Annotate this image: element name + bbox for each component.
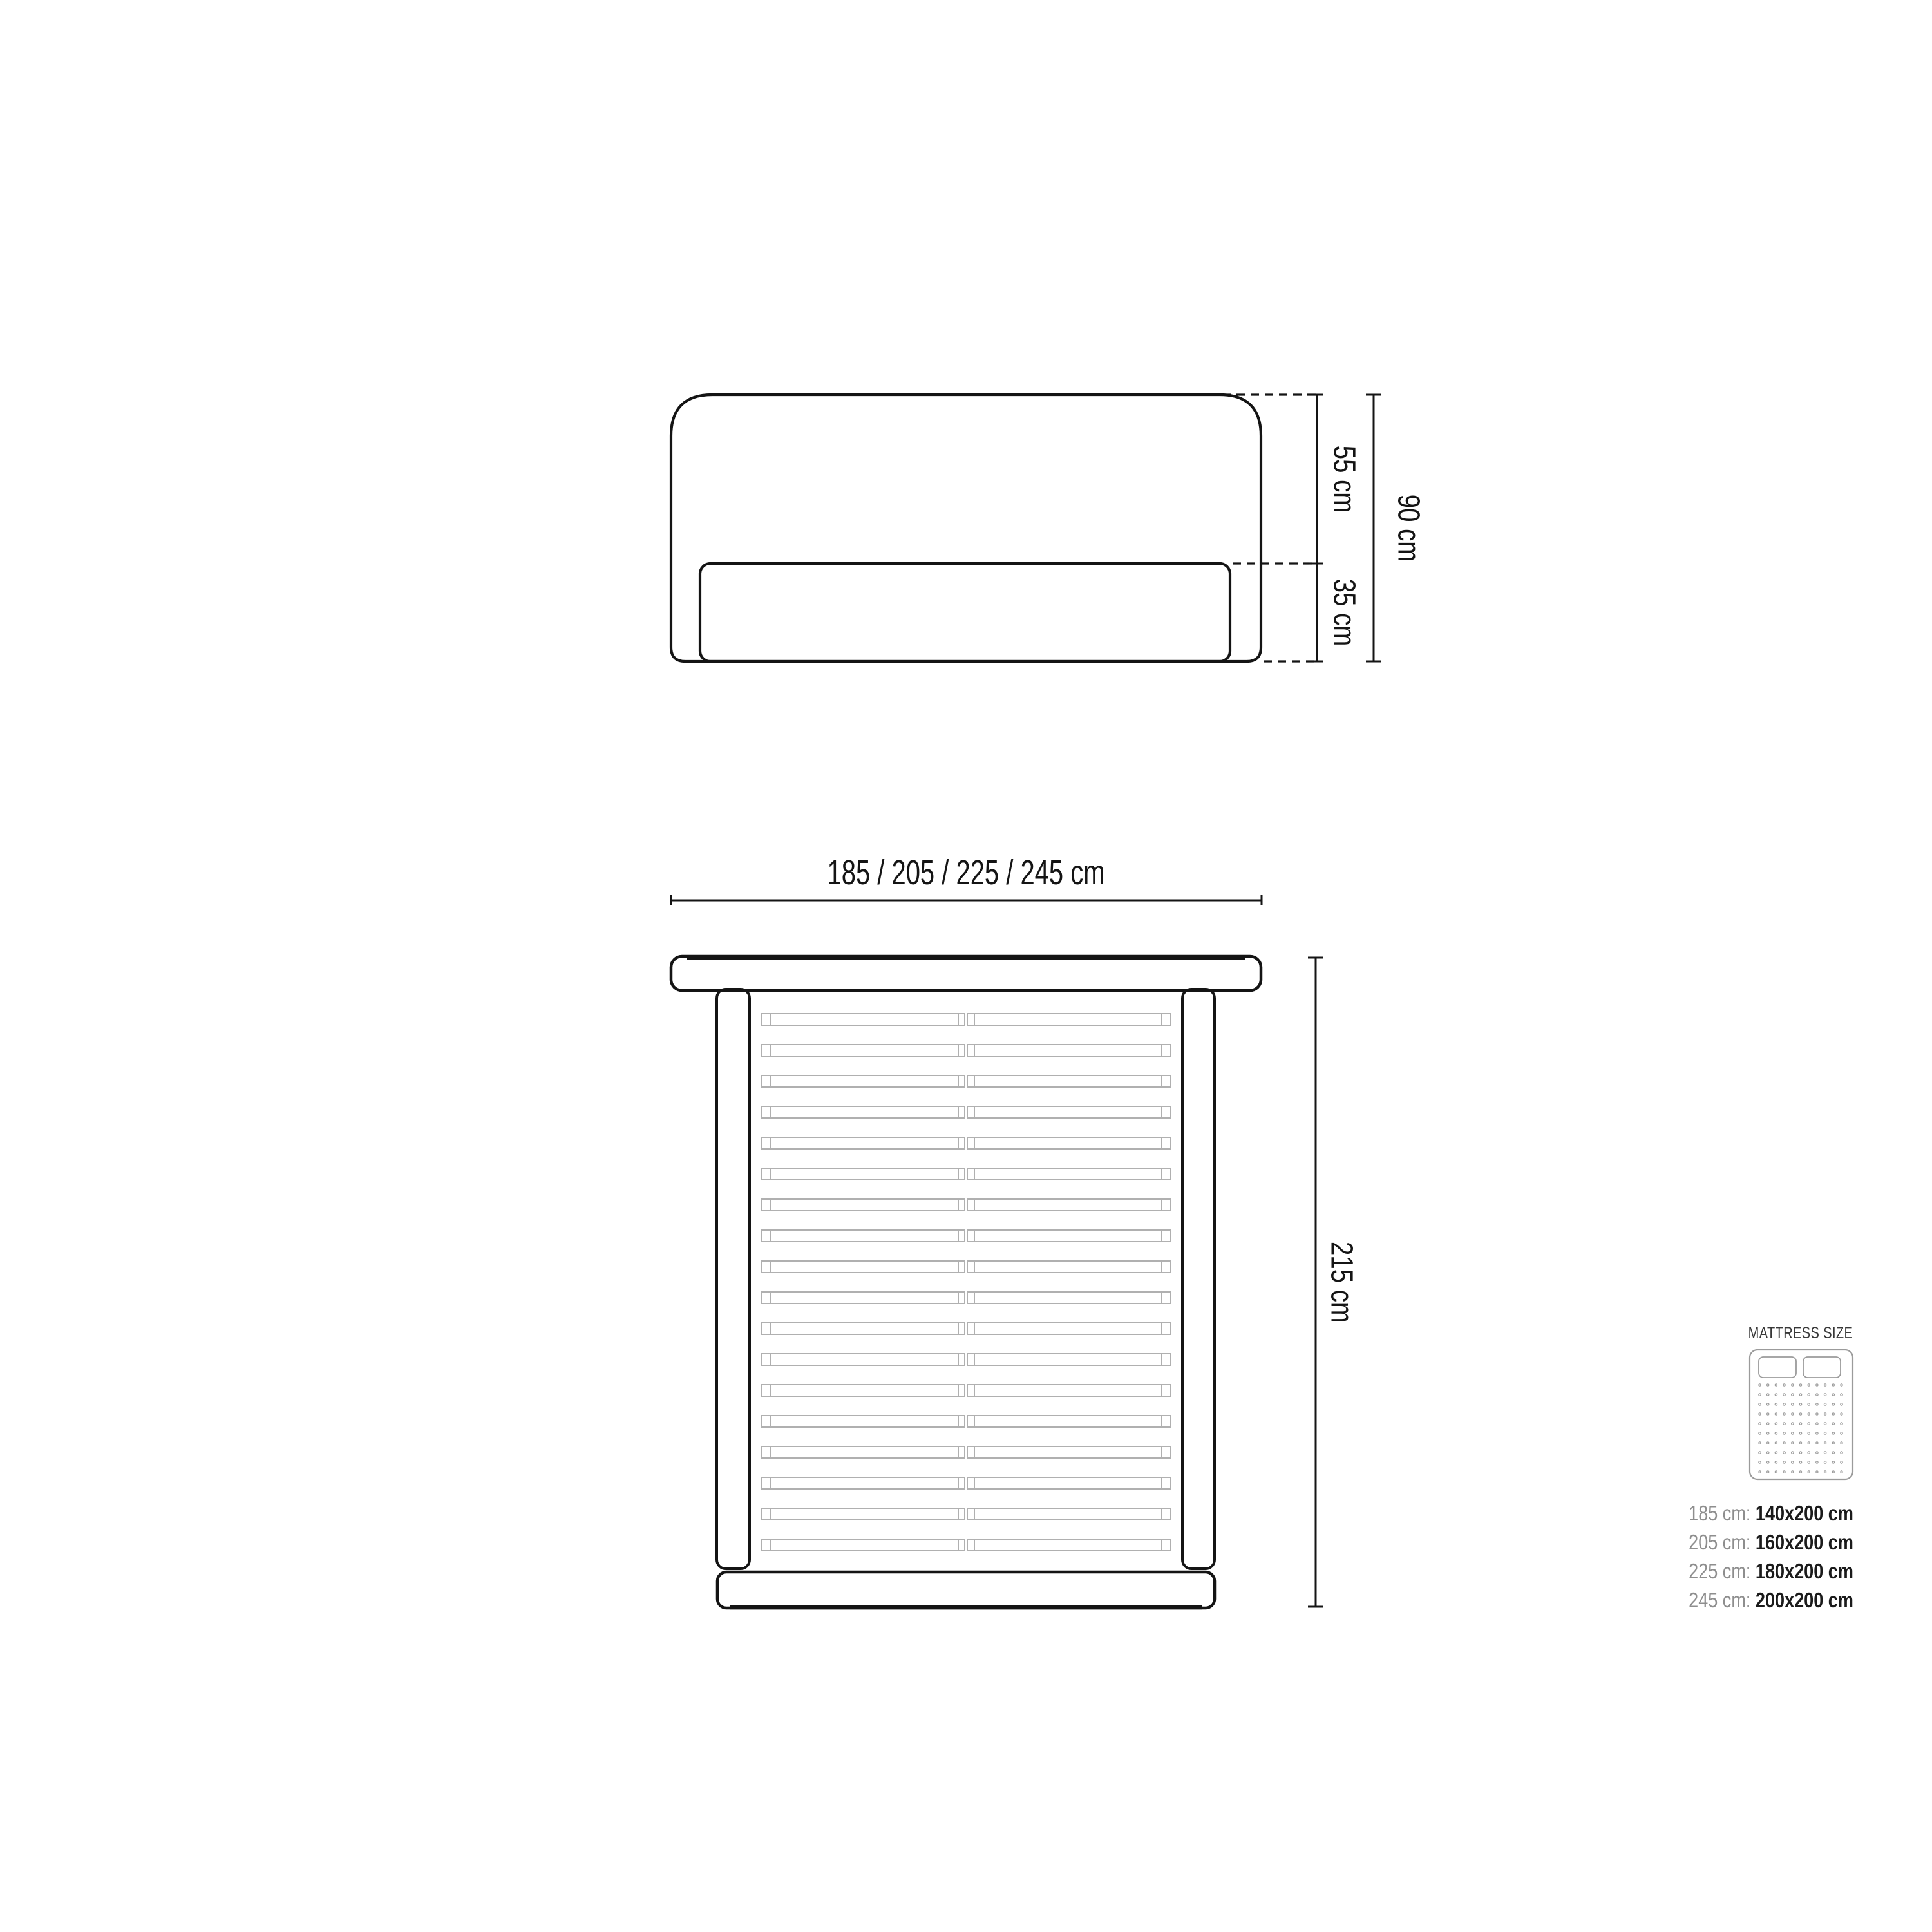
mattress-size-value: 180x200 cm [1756,1559,1853,1583]
tufting-dot [1799,1423,1801,1425]
slat [967,1539,1170,1551]
slat [762,1199,965,1211]
tufting-dot [1824,1394,1826,1396]
footboard-plan [717,1572,1215,1608]
slat [967,1014,1170,1025]
tufting-dot [1808,1471,1810,1473]
slat-end-marks [770,1261,1162,1273]
tufting-dot [1816,1413,1818,1415]
slat-end-marks [770,1075,1162,1087]
slat [762,1354,965,1365]
mattress-size-row-225: 225 cm: 180x200 cm [1653,1559,1853,1584]
mattress-size-row-185: 185 cm: 140x200 cm [1653,1501,1853,1526]
tufting-dot [1759,1394,1761,1396]
tufting-dot [1759,1452,1761,1454]
slat-end-marks [770,1508,1162,1520]
tufting-dot [1792,1423,1794,1425]
slat [762,1014,965,1025]
slat [967,1106,1170,1118]
tufting-dot [1767,1461,1769,1463]
left-side-rail [717,989,750,1569]
tufting-dot [1816,1384,1818,1386]
tufting-dot [1808,1461,1810,1463]
tufting-dot [1775,1384,1777,1386]
tufting-dot [1832,1394,1834,1396]
tufting-dot [1799,1442,1801,1444]
top-view [671,895,1323,1608]
tufting-dot [1775,1442,1777,1444]
tufting-dot [1783,1423,1785,1425]
tufting-dot [1783,1471,1785,1473]
slat [762,1446,965,1458]
slat-end-marks [770,1230,1162,1242]
pillow-left [1759,1357,1796,1378]
tufting-dot [1841,1452,1842,1454]
right-side-rail [1182,989,1215,1569]
tufting-dot [1799,1394,1801,1396]
tufting-dot [1792,1432,1794,1434]
extension-dashes [1222,395,1317,661]
tufting-dot [1792,1413,1794,1415]
pillow-right [1803,1357,1841,1378]
slat-end-marks [770,1292,1162,1303]
tufting-dot [1824,1403,1826,1405]
slat-end-marks [770,1199,1162,1211]
tufting-dot [1832,1403,1834,1405]
tufting-dot [1841,1423,1842,1425]
tufting-dot [1792,1394,1794,1396]
tufting-dot [1767,1423,1769,1425]
slat [762,1292,965,1303]
tufting-dot [1824,1413,1826,1415]
slat-end-marks [770,1106,1162,1118]
slat-end-marks [770,1168,1162,1180]
slat [967,1045,1170,1056]
headboard-outline [671,395,1261,661]
bed-base-front [700,563,1230,661]
tufting-dot [1841,1442,1842,1444]
tufting-dot [1783,1432,1785,1434]
slat [762,1477,965,1489]
tufting-dot [1792,1403,1794,1405]
slat [967,1168,1170,1180]
tufting-dot [1824,1452,1826,1454]
tufting-dot [1775,1394,1777,1396]
mattress-size-value: 200x200 cm [1756,1588,1853,1612]
tufting-dot [1799,1384,1801,1386]
slat-end-marks [770,1539,1162,1551]
tufting-dot [1824,1384,1826,1386]
tufting-dot [1816,1403,1818,1405]
slat [967,1230,1170,1242]
tufting-dot [1799,1413,1801,1415]
tufting-dot [1775,1413,1777,1415]
slat [762,1508,965,1520]
tufting-dot [1759,1403,1761,1405]
slat [967,1075,1170,1087]
tufting-dot [1799,1403,1801,1405]
dim-label-35cm: 35 cm [1327,571,1361,655]
headboard-plan [671,956,1261,990]
mattress-size-value: 140x200 cm [1756,1501,1853,1525]
slat-end-marks [770,1477,1162,1489]
tufting-dot [1759,1384,1761,1386]
frame-width-label: 185 cm: [1689,1501,1750,1525]
tufting-dot [1808,1452,1810,1454]
tufting-dot [1767,1452,1769,1454]
slat-end-marks [770,1137,1162,1149]
bed-dimension-diagram: 55 cm 35 cm 90 cm 185 / 205 / 225 / 245 … [0,0,1932,1932]
dim-label-55cm: 55 cm [1327,437,1361,522]
tufting-dot [1767,1432,1769,1434]
slat-end-marks [770,1014,1162,1025]
tufting-dot [1841,1471,1842,1473]
tufting-dot [1816,1461,1818,1463]
tufting-dot [1832,1384,1834,1386]
tufting-dot [1808,1384,1810,1386]
slat [967,1199,1170,1211]
slat [967,1477,1170,1489]
tufting-dot [1792,1442,1794,1444]
tufting-dot [1775,1423,1777,1425]
tufting-dot [1759,1423,1761,1425]
tufting-dot [1783,1413,1785,1415]
slat [967,1385,1170,1396]
tufting-dot [1759,1413,1761,1415]
dim-label-width-options: 185 / 205 / 225 / 245 cm [779,853,1153,893]
mattress-icon [1750,1350,1853,1479]
slats [762,1014,1170,1551]
mattress-size-value: 160x200 cm [1756,1530,1853,1554]
tufting-dot [1799,1461,1801,1463]
tufting-dot [1775,1461,1777,1463]
tufting-dot [1808,1423,1810,1425]
tufting-dot [1767,1413,1769,1415]
tufting-dot [1767,1442,1769,1444]
tufting-dot [1832,1423,1834,1425]
slat [762,1075,965,1087]
slat [967,1323,1170,1334]
tufting-dot [1775,1452,1777,1454]
tufting-dot [1841,1394,1842,1396]
tufting-dot [1759,1442,1761,1444]
tufting-dot [1783,1461,1785,1463]
slat [762,1539,965,1551]
tufting-dot [1792,1452,1794,1454]
slat-end-marks [770,1354,1162,1365]
slat [967,1261,1170,1273]
tufting-dot [1775,1403,1777,1405]
tufting-dot [1759,1471,1761,1473]
tufting-dot [1783,1403,1785,1405]
tufting-dot [1841,1432,1842,1434]
tufting-dot [1824,1442,1826,1444]
tufting-dot [1816,1442,1818,1444]
tufting-dot [1767,1394,1769,1396]
frame-width-label: 245 cm: [1689,1588,1750,1612]
slat [762,1230,965,1242]
slat [967,1508,1170,1520]
tufting-dot [1816,1423,1818,1425]
tufting-dot [1767,1403,1769,1405]
slat [967,1137,1170,1149]
tufting-dot [1832,1442,1834,1444]
tufting-dot [1759,1461,1761,1463]
tufting-dot [1792,1384,1794,1386]
tufting-dot [1767,1471,1769,1473]
tufting-dot [1808,1432,1810,1434]
tufting-dot [1816,1471,1818,1473]
slat [967,1354,1170,1365]
tufting-dot [1832,1452,1834,1454]
tufting-dot [1775,1471,1777,1473]
slat [762,1045,965,1056]
slat-end-marks [770,1416,1162,1427]
frame-width-label: 205 cm: [1689,1530,1750,1554]
tufting-dot [1841,1413,1842,1415]
tufting-dot [1799,1432,1801,1434]
tufting-dot [1832,1413,1834,1415]
mattress-size-row-245: 245 cm: 200x200 cm [1653,1588,1853,1613]
tufting-dot [1783,1394,1785,1396]
tufting-dot [1824,1423,1826,1425]
slat [762,1385,965,1396]
slat [762,1106,965,1118]
tufting-dot [1832,1471,1834,1473]
mattress-size-row-205: 205 cm: 160x200 cm [1653,1530,1853,1555]
tufting-dot [1808,1394,1810,1396]
tufting-dot [1799,1452,1801,1454]
slat-end-marks [770,1446,1162,1458]
width-dimension-line [671,895,1262,905]
tufting-dot [1824,1432,1826,1434]
tufting-dot [1816,1452,1818,1454]
slat [762,1416,965,1427]
frame-width-label: 225 cm: [1689,1559,1750,1583]
dim-label-90cm: 90 cm [1391,486,1425,571]
length-dimension-line [1308,958,1323,1607]
slat [762,1168,965,1180]
slat [967,1446,1170,1458]
tufting-dot [1824,1461,1826,1463]
tufting-dot [1767,1384,1769,1386]
tufting-dot [1824,1471,1826,1473]
dim-label-215cm: 215 cm [1324,1231,1358,1332]
slat-end-marks [770,1323,1162,1334]
slat [762,1137,965,1149]
mattress-tufting-dots [1759,1384,1842,1473]
tufting-dot [1816,1432,1818,1434]
diagram-linework [0,0,1932,1932]
slat-end-marks [770,1385,1162,1396]
tufting-dot [1841,1461,1842,1463]
tufting-dot [1841,1384,1842,1386]
slat [762,1323,965,1334]
tufting-dot [1841,1403,1842,1405]
slat-end-marks [770,1045,1162,1056]
front-view [671,395,1381,661]
tufting-dot [1832,1432,1834,1434]
slat [967,1292,1170,1303]
tufting-dot [1816,1394,1818,1396]
tufting-dot [1783,1384,1785,1386]
slat [967,1416,1170,1427]
tufting-dot [1799,1471,1801,1473]
tufting-dot [1808,1403,1810,1405]
tufting-dot [1832,1461,1834,1463]
mattress-size-title: MATTRESS SIZE [1722,1324,1853,1343]
tufting-dot [1759,1432,1761,1434]
tufting-dot [1775,1432,1777,1434]
slat [762,1261,965,1273]
tufting-dot [1792,1461,1794,1463]
tufting-dot [1783,1452,1785,1454]
tufting-dot [1808,1442,1810,1444]
tufting-dot [1808,1413,1810,1415]
tufting-dot [1792,1471,1794,1473]
tufting-dot [1783,1442,1785,1444]
